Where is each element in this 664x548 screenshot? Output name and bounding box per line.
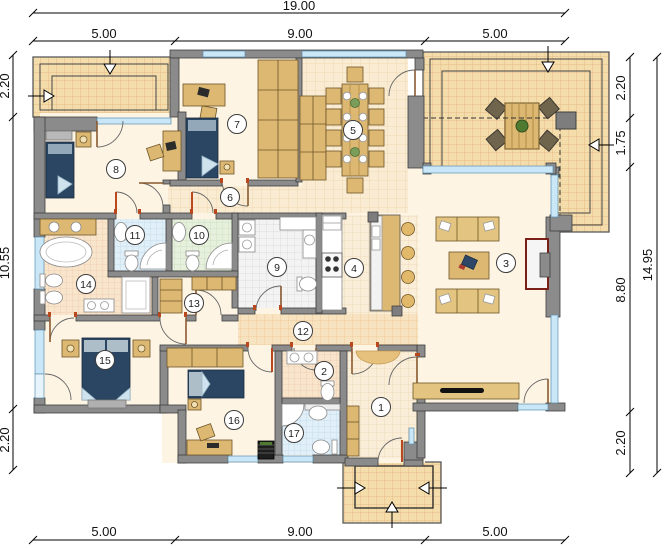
desk (163, 131, 181, 171)
svg-text:16: 16 (228, 415, 240, 427)
room-badge-13: 13 (185, 294, 204, 313)
room-badge-10: 10 (190, 226, 209, 245)
room-badge-11: 11 (126, 226, 145, 245)
stool (402, 223, 415, 236)
bench (46, 131, 72, 140)
chair (326, 130, 341, 146)
chair (369, 88, 384, 104)
toilet (313, 440, 330, 454)
bathtub (40, 237, 92, 267)
chair (347, 67, 363, 82)
stool (402, 247, 415, 260)
dim-top-seg-1: 9.00 (287, 26, 312, 41)
chair (326, 109, 341, 125)
svg-text:5: 5 (350, 125, 356, 137)
chair (326, 151, 341, 167)
window (283, 456, 313, 462)
chair (347, 178, 363, 193)
svg-text:15: 15 (99, 355, 111, 367)
room-badge-16: 16 (225, 411, 244, 430)
stove (322, 253, 342, 277)
room-badge-12: 12 (294, 322, 313, 341)
dim-right-total: 14.95 (640, 249, 655, 282)
floor-plan-drawing: 1 2 3 4 5 6 7 8 9 10 11 12 13 14 15 16 1… (0, 0, 664, 548)
counter (280, 217, 316, 230)
room-badge-3: 3 (497, 254, 516, 273)
svg-text:12: 12 (297, 326, 309, 338)
toilet (300, 277, 317, 291)
bench (88, 400, 126, 408)
dim-left-seg-2: 2.20 (0, 427, 12, 452)
entrance-porch (337, 462, 447, 528)
window-glass-wall (423, 166, 553, 173)
dim-bottom-seg-1: 9.00 (287, 524, 312, 539)
svg-text:13: 13 (188, 298, 200, 310)
window (97, 118, 171, 124)
window (551, 315, 558, 403)
toilet-tank (40, 274, 45, 287)
svg-text:4: 4 (351, 263, 357, 275)
window (228, 456, 258, 462)
svg-text:3: 3 (503, 258, 509, 270)
dim-top-total: 19.00 (283, 0, 316, 13)
toilet (46, 274, 63, 287)
toilet (321, 384, 334, 401)
chair (369, 130, 384, 146)
sink (309, 406, 327, 420)
room-badge-15: 15 (96, 351, 115, 370)
room-badge-14: 14 (77, 275, 96, 294)
svg-text:11: 11 (130, 230, 141, 242)
room-badge-9: 9 (268, 258, 287, 277)
dim-bottom-seg-2: 5.00 (482, 524, 507, 539)
terrace-door (35, 374, 44, 398)
toilet-tank (332, 440, 337, 454)
hall12-floor (238, 314, 418, 345)
dim-right-seg-0: 2.20 (613, 75, 628, 100)
double-sink (84, 299, 114, 312)
centerpiece (351, 99, 360, 108)
sofa (167, 348, 243, 367)
svg-text:8: 8 (113, 164, 119, 176)
bidet (46, 291, 63, 304)
stool (402, 271, 415, 284)
svg-text:10: 10 (193, 230, 205, 242)
svg-text:7: 7 (234, 119, 240, 131)
room-badge-4: 4 (345, 259, 364, 278)
chair (326, 88, 341, 104)
dim-top-seg-0: 5.00 (91, 26, 116, 41)
window (302, 51, 406, 57)
room-badge-8: 8 (107, 160, 126, 179)
room-badge-7: 7 (228, 115, 247, 134)
room-badge-17: 17 (285, 424, 304, 443)
double-sink (287, 351, 317, 364)
dryer (239, 237, 255, 252)
dim-left-seg-0: 2.20 (0, 73, 12, 98)
tv-icon (440, 388, 484, 393)
dim-left-seg-1: 10.55 (0, 247, 12, 280)
dim-top-seg-2: 5.00 (482, 26, 507, 41)
plant-icon (516, 120, 528, 132)
floor-plan-canvas: 1 2 3 4 5 6 7 8 9 10 11 12 13 14 15 16 1… (0, 0, 664, 548)
svg-text:9: 9 (274, 262, 280, 274)
toilet (186, 255, 199, 271)
vanity-cabinet (40, 219, 96, 235)
dim-right-seg-2: 8.80 (613, 277, 628, 302)
washer (239, 220, 255, 235)
chair (369, 109, 384, 125)
svg-text:2: 2 (321, 366, 327, 378)
room-badge-2: 2 (315, 362, 334, 381)
svg-text:17: 17 (288, 428, 300, 440)
terrace-column (556, 112, 576, 129)
room-badge-5: 5 (344, 121, 363, 140)
centerpiece (351, 148, 360, 157)
sink (173, 223, 186, 242)
room-badge-6: 6 (221, 188, 240, 207)
svg-text:6: 6 (227, 192, 233, 204)
wardrobe (347, 406, 359, 456)
room-badge-1: 1 (372, 398, 391, 417)
terrace-top-left (28, 50, 175, 117)
window (551, 175, 558, 217)
dim-right-seg-1: 1.75 (613, 130, 628, 155)
toilet (125, 255, 138, 271)
counter (303, 230, 316, 258)
dim-bottom-seg-0: 5.00 (91, 524, 116, 539)
dim-right-seg-3: 2.20 (613, 430, 628, 455)
chair (369, 151, 384, 167)
svg-text:1: 1 (378, 402, 384, 414)
window (518, 404, 548, 410)
svg-text:14: 14 (80, 279, 92, 291)
window (409, 428, 414, 444)
window (35, 330, 44, 374)
window (203, 51, 245, 57)
toilet-tank (40, 291, 45, 304)
stool (402, 295, 415, 308)
